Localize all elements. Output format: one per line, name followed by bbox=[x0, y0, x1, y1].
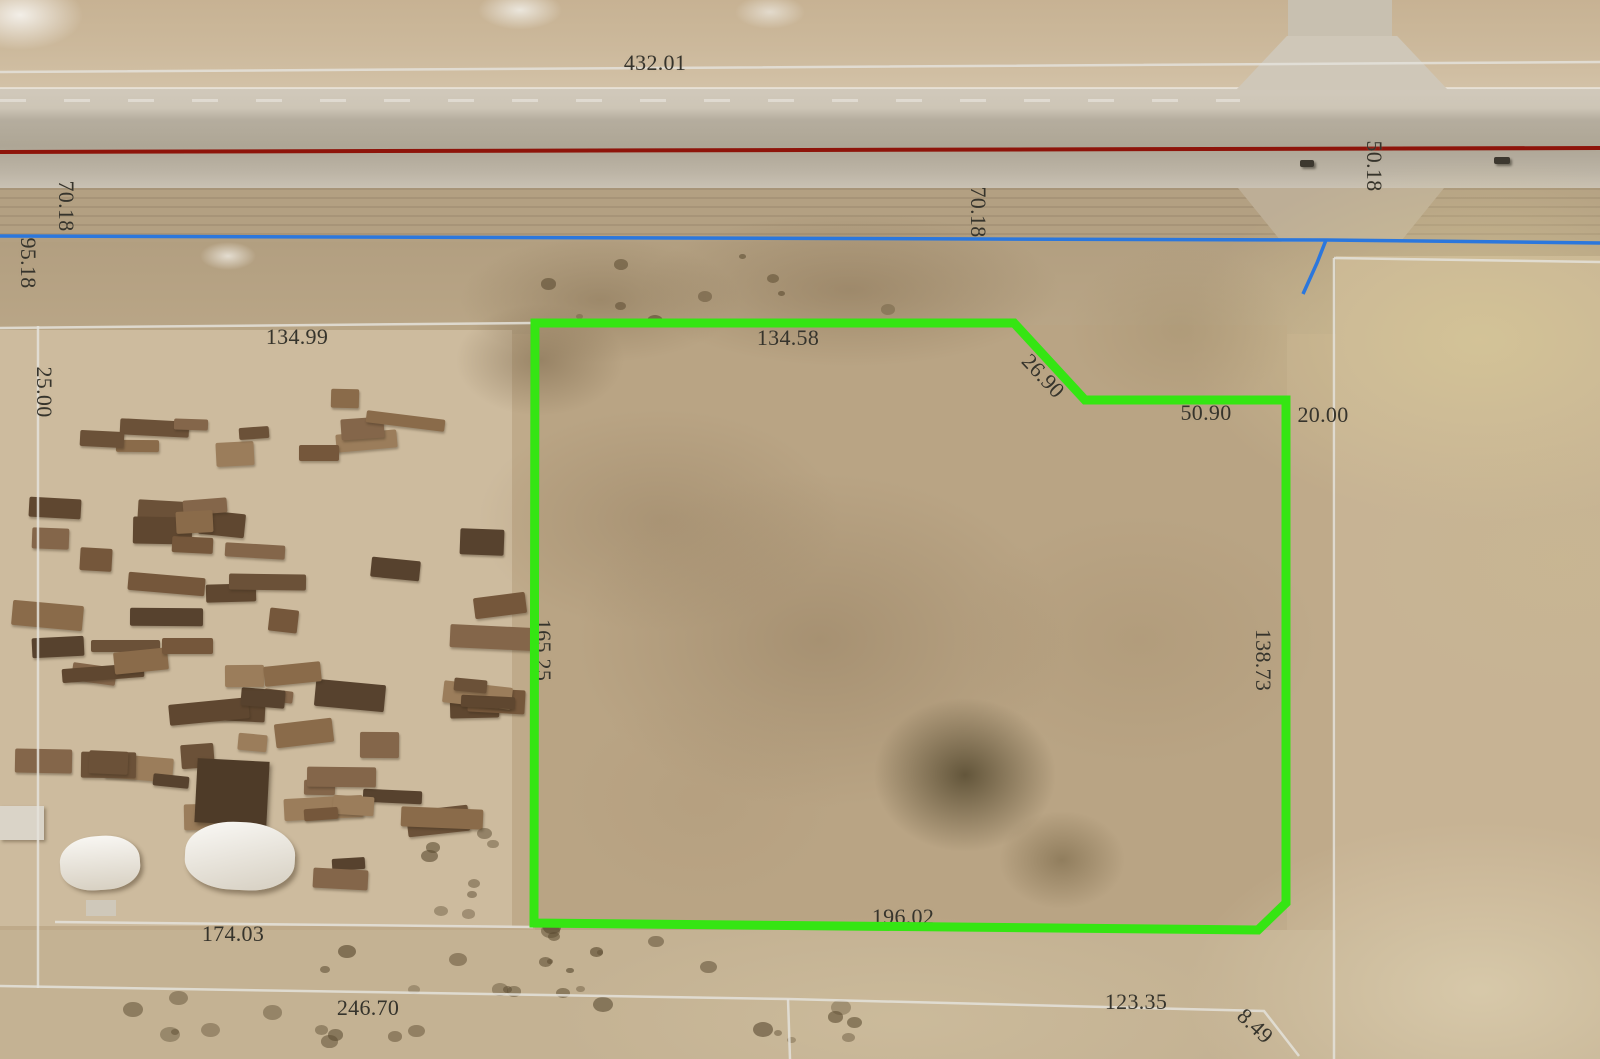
map-canvas[interactable]: 432.0150.1870.1895.1870.18134.9925.00134… bbox=[0, 0, 1600, 1059]
parcel-highlight-outline[interactable] bbox=[534, 323, 1286, 930]
road-centerline-red bbox=[0, 148, 1600, 152]
boundary-line-blue bbox=[0, 236, 1600, 294]
parcel-lines bbox=[0, 62, 1600, 1059]
survey-overlay bbox=[0, 0, 1600, 1059]
